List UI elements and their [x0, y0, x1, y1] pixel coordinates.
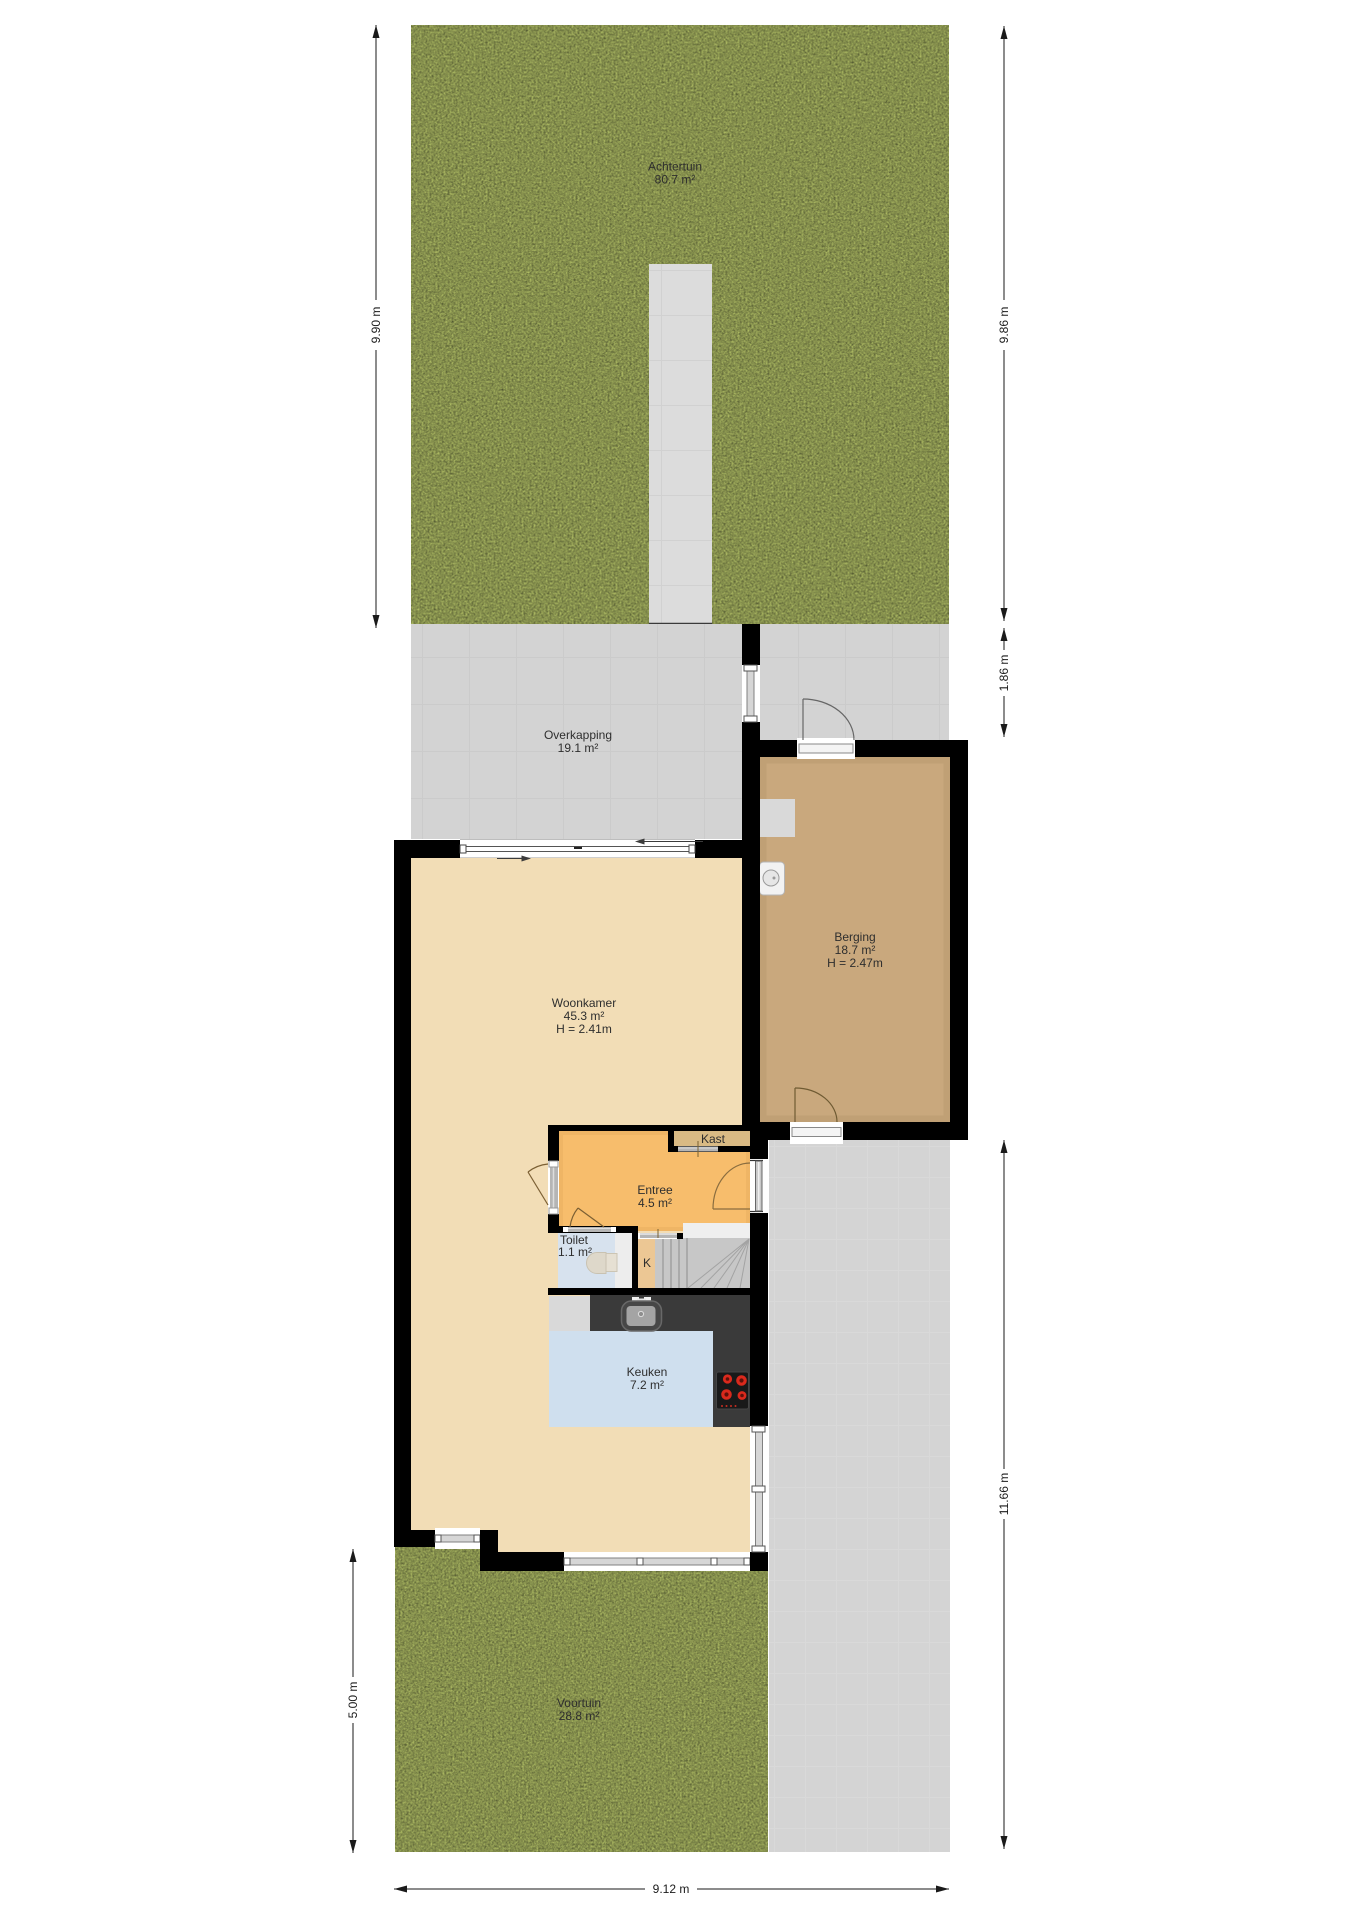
svg-text:H = 2.41m: H = 2.41m	[556, 1022, 612, 1036]
svg-text:9.86 m: 9.86 m	[997, 307, 1011, 344]
svg-text:19.1 m²: 19.1 m²	[558, 741, 599, 755]
svg-text:5.00 m: 5.00 m	[346, 1682, 360, 1719]
svg-text:80.7 m²: 80.7 m²	[655, 173, 696, 187]
svg-text:18.7 m²: 18.7 m²	[835, 943, 876, 957]
svg-text:1.1 m²: 1.1 m²	[558, 1245, 592, 1259]
svg-text:7.2 m²: 7.2 m²	[630, 1378, 664, 1392]
svg-text:K: K	[643, 1256, 651, 1270]
svg-text:1.86 m: 1.86 m	[997, 655, 1011, 692]
svg-text:Achtertuin: Achtertuin	[648, 160, 702, 174]
svg-text:Voortuin: Voortuin	[557, 1696, 601, 1710]
svg-text:45.3 m²: 45.3 m²	[564, 1009, 605, 1023]
svg-text:Entree: Entree	[637, 1183, 673, 1197]
svg-text:11.66 m: 11.66 m	[997, 1473, 1011, 1515]
svg-text:9.90 m: 9.90 m	[369, 307, 383, 344]
svg-text:4.5 m²: 4.5 m²	[638, 1196, 672, 1210]
svg-text:9.12 m: 9.12 m	[653, 1882, 690, 1896]
svg-text:H = 2.47m: H = 2.47m	[827, 956, 883, 970]
svg-text:Woonkamer: Woonkamer	[552, 996, 616, 1010]
svg-text:Kast: Kast	[701, 1132, 726, 1146]
svg-text:28.8 m²: 28.8 m²	[559, 1709, 600, 1723]
svg-text:Keuken: Keuken	[627, 1365, 668, 1379]
svg-text:Berging: Berging	[834, 930, 875, 944]
svg-text:Overkapping: Overkapping	[544, 728, 612, 742]
